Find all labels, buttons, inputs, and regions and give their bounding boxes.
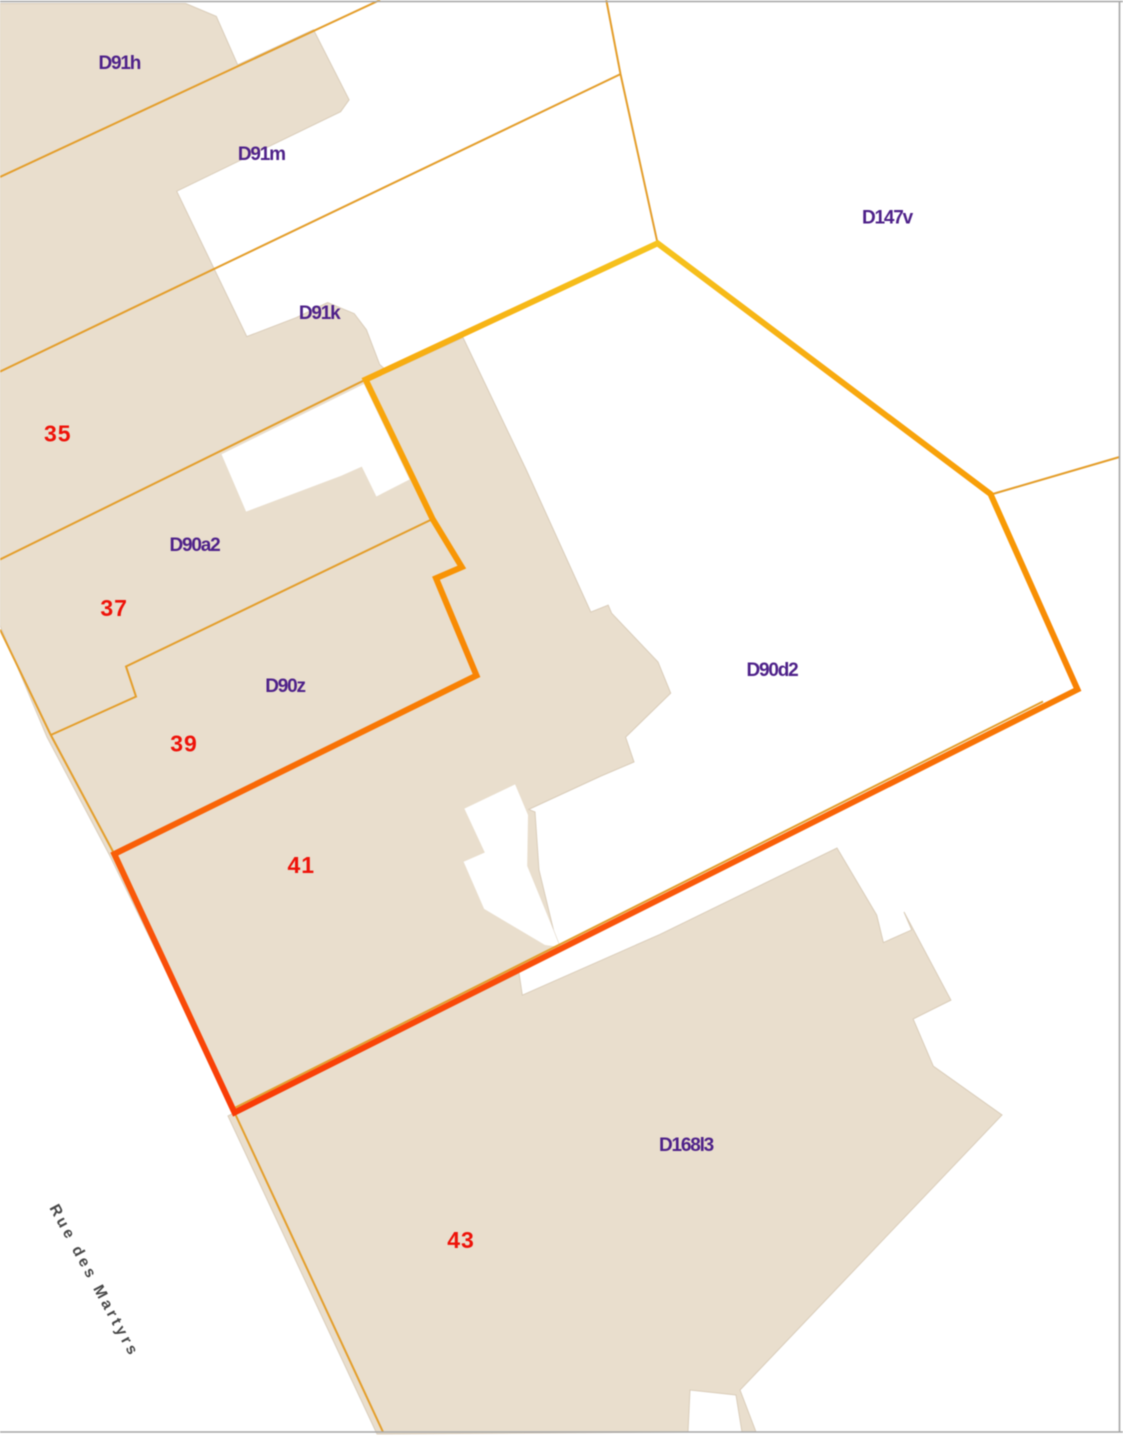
svg-text:D91m: D91m xyxy=(238,144,285,165)
svg-text:D168l3: D168l3 xyxy=(659,1135,714,1156)
svg-text:37: 37 xyxy=(100,595,128,621)
svg-text:D90z: D90z xyxy=(265,676,305,697)
svg-text:35: 35 xyxy=(44,421,72,447)
svg-text:43: 43 xyxy=(447,1227,475,1253)
svg-text:D90d2: D90d2 xyxy=(746,660,798,681)
svg-text:D91h: D91h xyxy=(98,53,140,74)
svg-text:39: 39 xyxy=(170,731,198,757)
svg-text:41: 41 xyxy=(288,852,316,878)
svg-text:D147v: D147v xyxy=(862,208,914,229)
svg-text:D91k: D91k xyxy=(299,303,341,324)
svg-text:D90a2: D90a2 xyxy=(170,535,221,556)
